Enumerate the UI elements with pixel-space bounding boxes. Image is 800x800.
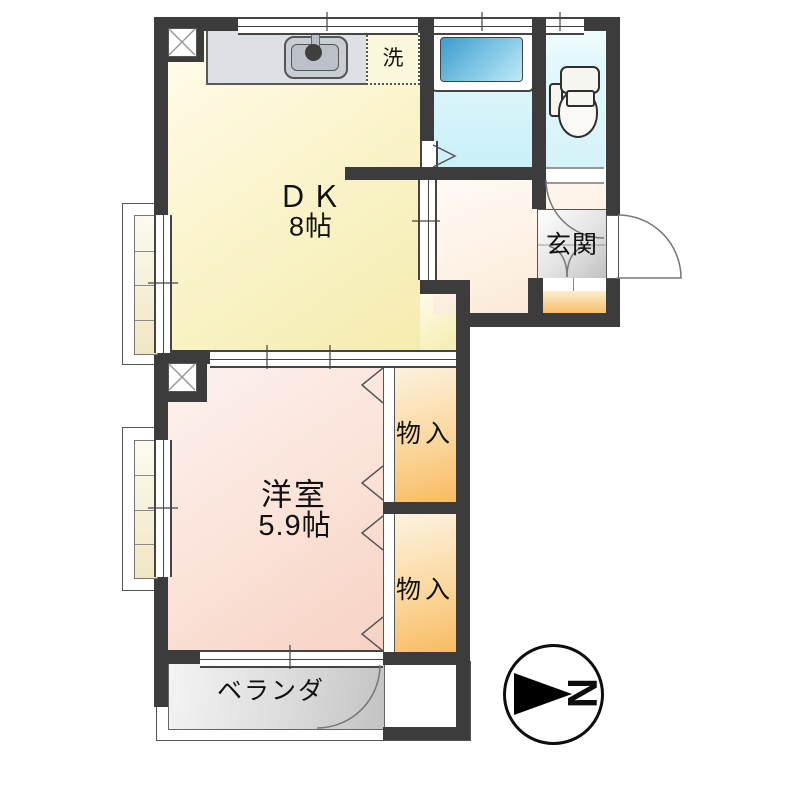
western-room-size: 5.9帖	[258, 502, 331, 544]
pillar-icon	[168, 28, 197, 57]
north-letter: N	[558, 673, 606, 713]
dk-western-sliding-door	[210, 350, 393, 368]
genkan-gap-divider	[573, 278, 574, 291]
wall	[606, 17, 620, 215]
wall	[456, 294, 470, 740]
wall	[154, 577, 168, 707]
dk-room-size: 8帖	[289, 205, 333, 244]
closet-upper-label: 物入	[396, 414, 454, 450]
wall	[528, 278, 543, 313]
wall	[420, 31, 434, 141]
genkan-gap	[537, 278, 607, 291]
wall	[345, 167, 535, 180]
wall	[456, 313, 620, 327]
closet-top-band	[393, 350, 456, 368]
bathtub-water	[440, 37, 523, 82]
dk-bay-window	[154, 215, 172, 353]
toilet-window	[546, 17, 584, 35]
laundry-space: 洗	[366, 28, 420, 85]
floor-plan: 洗	[0, 0, 800, 800]
wall	[532, 17, 546, 31]
veranda-sliding-door	[200, 650, 383, 668]
north-compass: N	[503, 644, 604, 745]
front-door-leaf	[606, 215, 619, 279]
wall	[154, 17, 168, 215]
genkan-step	[543, 291, 606, 313]
laundry-label: 洗	[383, 42, 404, 72]
faucet-knob-icon	[305, 44, 322, 61]
kitchen-window	[238, 17, 418, 35]
wall	[532, 31, 546, 167]
front-door-arc	[617, 215, 681, 278]
wall	[420, 280, 470, 294]
wall	[383, 727, 470, 740]
bathroom-window	[434, 17, 532, 35]
veranda-label: ベランダ	[217, 671, 325, 707]
wall	[532, 160, 546, 209]
western-bay-window	[154, 440, 172, 577]
toilet-door-opening	[546, 167, 604, 184]
toilet-seat-icon	[566, 90, 595, 107]
bathroom-door-opening	[420, 141, 438, 167]
wall	[383, 652, 470, 665]
wall	[418, 17, 434, 31]
wall	[154, 650, 200, 664]
dk-hall-sliding-door	[418, 180, 437, 280]
pillar-icon	[168, 363, 197, 392]
genkan-label: 玄関	[546, 225, 598, 261]
closet-lower-label: 物入	[396, 570, 454, 606]
wall	[383, 502, 470, 514]
